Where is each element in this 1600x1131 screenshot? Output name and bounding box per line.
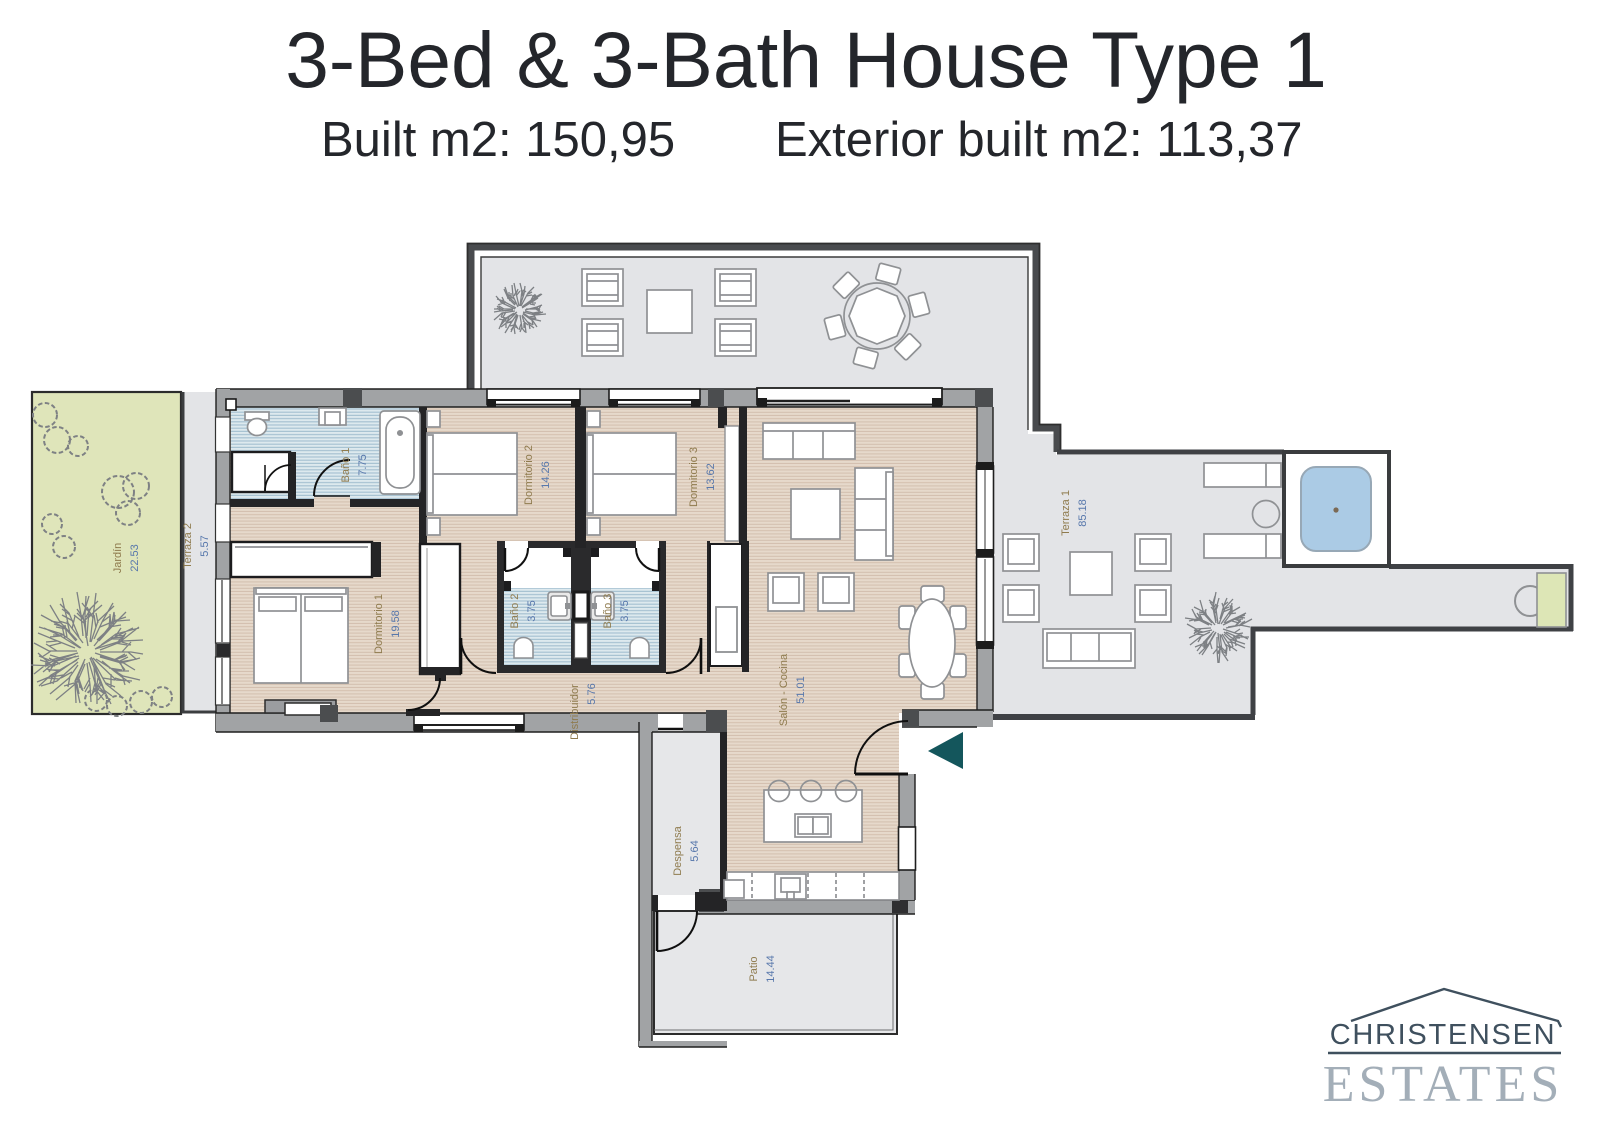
- svg-text:22.53: 22.53: [129, 544, 141, 572]
- svg-text:Dormitorio 1: Dormitorio 1: [373, 594, 385, 654]
- svg-text:Baño 3: Baño 3: [602, 594, 614, 629]
- svg-text:5.57: 5.57: [199, 535, 211, 556]
- svg-text:14.26: 14.26: [540, 461, 552, 489]
- svg-text:Jardín: Jardín: [112, 543, 124, 574]
- svg-text:Baño 1: Baño 1: [340, 448, 352, 483]
- svg-text:3-Bed & 3-Bath House Type 1: 3-Bed & 3-Bath House Type 1: [285, 16, 1327, 104]
- svg-text:Patio: Patio: [748, 956, 760, 981]
- svg-text:Dormitorio 3: Dormitorio 3: [688, 447, 700, 507]
- svg-text:7.75: 7.75: [357, 454, 369, 475]
- svg-text:Built m2: 150,95: Built m2: 150,95: [321, 113, 675, 167]
- svg-text:Salón - Cocina: Salón - Cocina: [778, 653, 790, 726]
- svg-text:85.18: 85.18: [1077, 499, 1089, 527]
- svg-text:14.44: 14.44: [765, 955, 777, 983]
- svg-text:3.75: 3.75: [526, 600, 538, 621]
- svg-text:Despensa: Despensa: [672, 825, 684, 875]
- svg-text:CHRISTENSEN: CHRISTENSEN: [1330, 1019, 1557, 1051]
- svg-text:Exterior built m2: 113,37: Exterior built m2: 113,37: [775, 113, 1302, 167]
- svg-text:Terraza 1: Terraza 1: [1060, 490, 1072, 536]
- svg-text:Dormitorio 2: Dormitorio 2: [523, 445, 535, 505]
- svg-text:5.76: 5.76: [586, 683, 598, 704]
- svg-text:Baño 2: Baño 2: [509, 594, 521, 629]
- svg-text:13.62: 13.62: [705, 463, 717, 491]
- svg-text:3.75: 3.75: [619, 600, 631, 621]
- svg-text:Distribuidor: Distribuidor: [569, 684, 581, 740]
- svg-text:Terraza 2: Terraza 2: [182, 523, 194, 569]
- svg-text:51.01: 51.01: [795, 676, 807, 704]
- svg-text:5.64: 5.64: [689, 840, 701, 861]
- svg-text:ESTATES: ESTATES: [1323, 1056, 1564, 1113]
- svg-text:19.58: 19.58: [390, 610, 402, 638]
